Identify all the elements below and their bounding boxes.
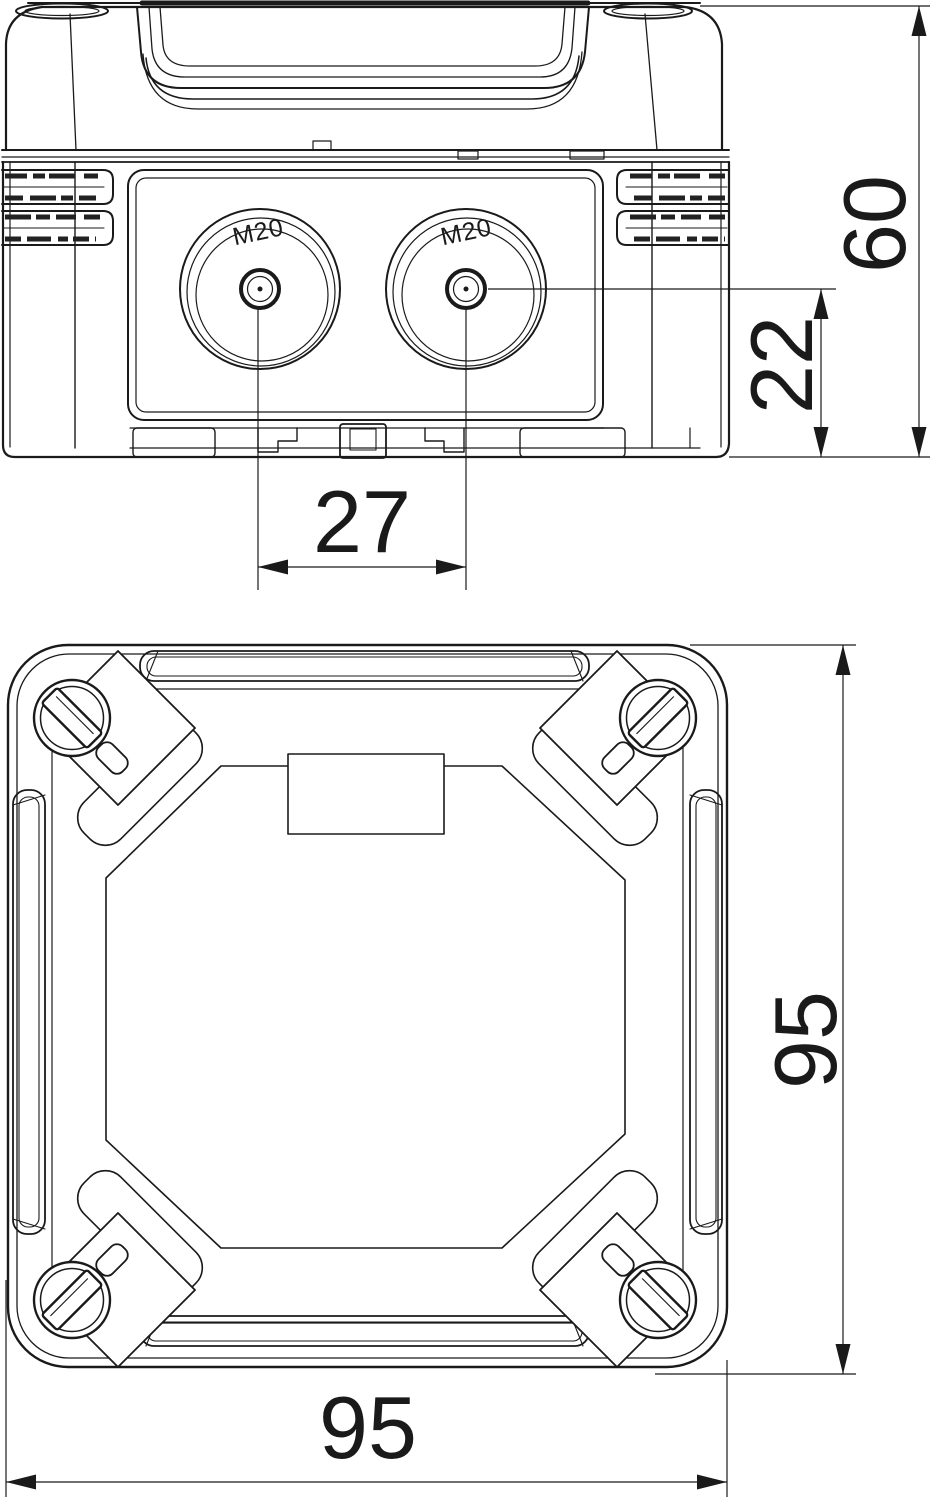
dim-total-height-label: 60 bbox=[825, 175, 924, 273]
technical-drawing-page: M20 M20 60 22 bbox=[0, 0, 935, 1500]
junction-notch bbox=[313, 141, 331, 150]
lid-label-field bbox=[288, 754, 444, 834]
entry-right-label: M20 bbox=[438, 213, 494, 251]
screw-bottom-left bbox=[34, 1213, 195, 1367]
lid-handle-recess bbox=[137, 7, 589, 109]
dim-width-label: 95 bbox=[319, 1378, 417, 1477]
dim-entry-height-label: 22 bbox=[732, 316, 831, 414]
dim-depth: 95 bbox=[655, 645, 856, 1374]
dim-entry-spacing: 27 bbox=[258, 308, 466, 590]
bottom-latches bbox=[130, 424, 700, 458]
screw-bottom-right bbox=[540, 1213, 696, 1367]
lid-octagon-outline bbox=[106, 766, 625, 1248]
cable-entry-left: M20 bbox=[180, 209, 340, 369]
edge-groove-top bbox=[140, 651, 589, 681]
vent-slots-right bbox=[617, 170, 728, 245]
box-lid bbox=[2, 3, 729, 162]
front-panel bbox=[128, 170, 603, 420]
edge-groove-bottom bbox=[140, 1316, 589, 1346]
screw-top-left bbox=[34, 651, 195, 805]
plan-view: 95 95 bbox=[6, 645, 856, 1497]
junction-notch bbox=[458, 151, 478, 159]
foot-left bbox=[133, 428, 215, 457]
foot-right bbox=[520, 428, 625, 457]
dim-entry-spacing-label: 27 bbox=[313, 472, 411, 571]
dim-entry-height: 22 bbox=[488, 289, 836, 457]
junction-notch bbox=[570, 151, 604, 159]
edge-groove-left bbox=[13, 790, 45, 1234]
technical-drawing-canvas: M20 M20 60 22 bbox=[0, 0, 935, 1500]
entry-left-label: M20 bbox=[230, 213, 286, 251]
front-view: M20 M20 60 22 bbox=[2, 3, 930, 590]
screw-top-right bbox=[540, 651, 696, 805]
vent-slots-left bbox=[2, 170, 113, 245]
edge-groove-right bbox=[690, 790, 722, 1234]
lid-screw-edge-right bbox=[604, 4, 692, 19]
dim-depth-label: 95 bbox=[756, 991, 855, 1089]
box-body bbox=[2, 162, 729, 458]
